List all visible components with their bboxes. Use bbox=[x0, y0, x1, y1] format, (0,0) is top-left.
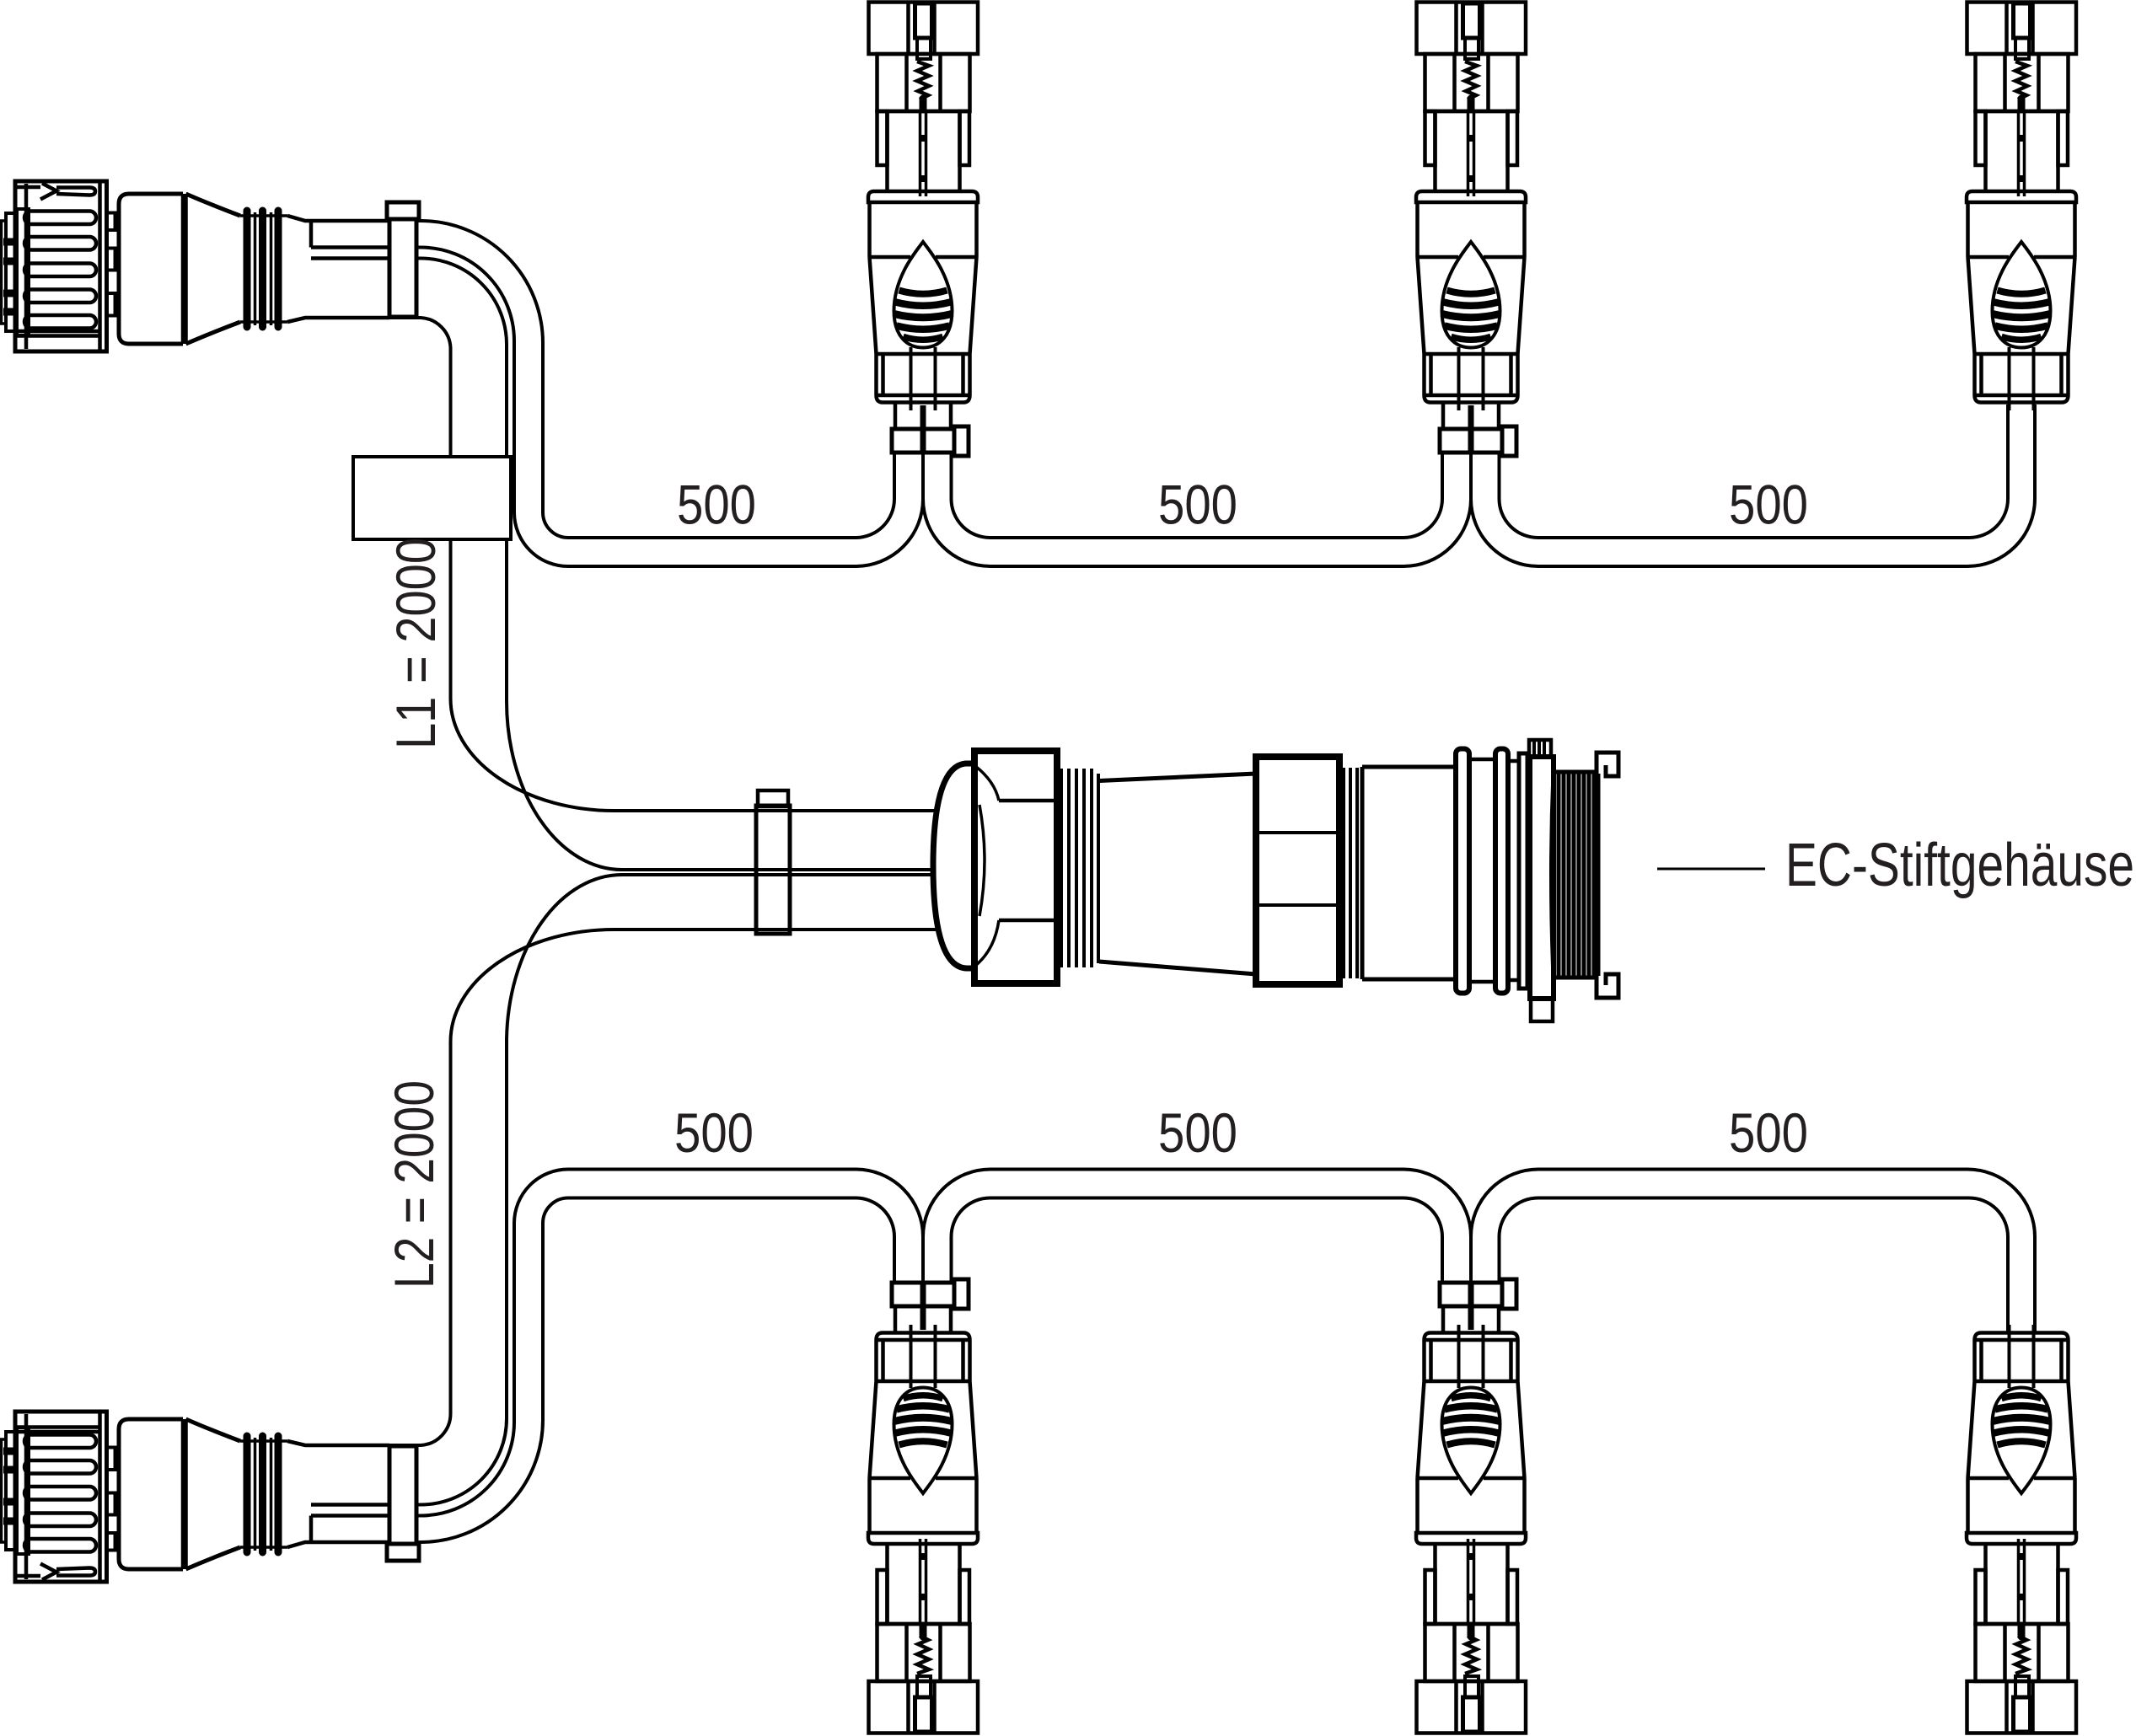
svg-text:500: 500 bbox=[677, 474, 756, 536]
svg-text:EC-Stiftgehäuse: EC-Stiftgehäuse bbox=[1785, 832, 2134, 899]
svg-text:500: 500 bbox=[1729, 1101, 1808, 1164]
svg-text:500: 500 bbox=[674, 1101, 754, 1164]
svg-text:500: 500 bbox=[1158, 474, 1237, 536]
svg-text:L2 = 2000: L2 = 2000 bbox=[383, 1080, 445, 1289]
svg-text:500: 500 bbox=[1729, 474, 1808, 536]
svg-text:L1 = 2000: L1 = 2000 bbox=[384, 538, 447, 749]
svg-text:500: 500 bbox=[1158, 1101, 1237, 1164]
